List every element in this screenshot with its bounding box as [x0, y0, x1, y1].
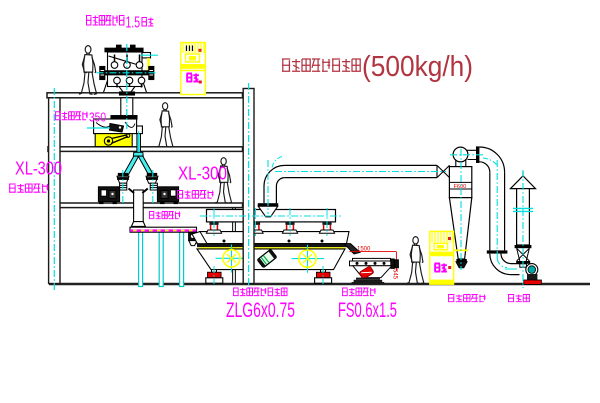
svg-text:XL-300: XL-300	[178, 164, 227, 184]
svg-text:ZLG6x0.75: ZLG6x0.75	[226, 299, 295, 322]
svg-text:350: 350	[89, 110, 106, 124]
svg-text:545: 545	[392, 269, 398, 280]
svg-text:1.5: 1.5	[126, 15, 141, 32]
svg-text:FS0.6x1.5: FS0.6x1.5	[338, 299, 397, 322]
svg-text:XL-300: XL-300	[15, 159, 62, 179]
svg-text:1500: 1500	[357, 247, 371, 253]
svg-text:F600: F600	[454, 184, 467, 190]
svg-text:(500kg/h): (500kg/h)	[362, 51, 473, 83]
